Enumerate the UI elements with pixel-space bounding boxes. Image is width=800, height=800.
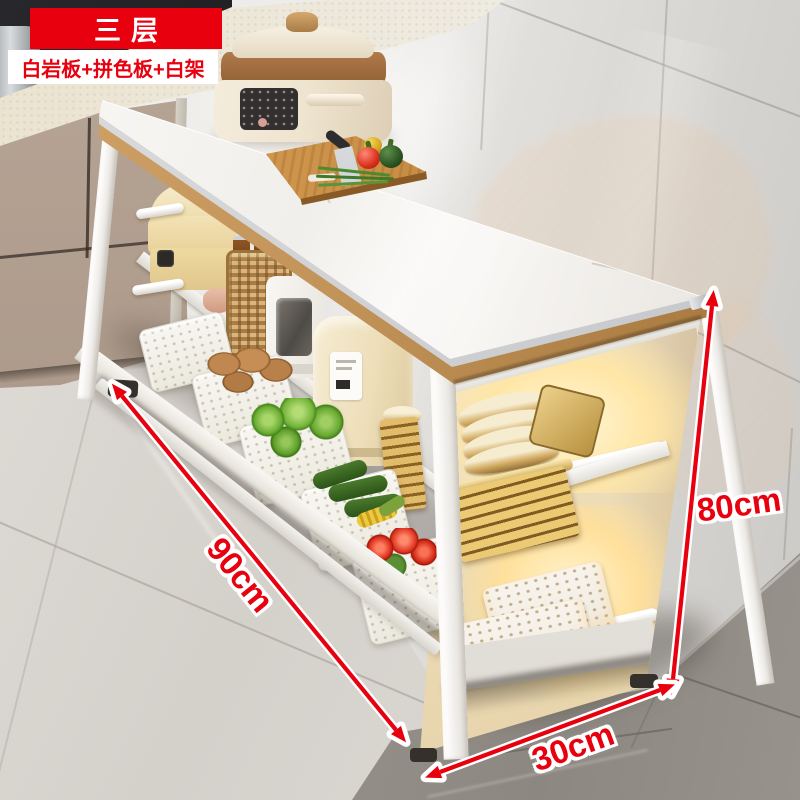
table-foot [108,379,139,398]
red-pepper [357,147,380,169]
product-photo-kitchen-prep-table: 80cm 90cm 30cm 三层 白岩板+拼色板+白架 [0,0,800,800]
green-pepper [379,145,403,168]
floor-grout-line [658,668,800,723]
green-bell-peppers [250,398,350,464]
electric-steamer-control-panel [240,88,298,130]
electric-steamer-knob [286,12,318,32]
table-foot [630,674,658,688]
table-foot [410,748,437,762]
materials-badge: 白岩板+拼色板+白架 [8,50,218,84]
potatoes [204,348,296,404]
electric-steamer-power-knob [258,118,267,127]
tier-badge: 三层 [30,8,222,49]
electric-steamer-handle [306,94,364,106]
rice-cooker-label [330,352,362,400]
steamer-dial [157,250,174,267]
floor-grout-line [0,395,94,800]
